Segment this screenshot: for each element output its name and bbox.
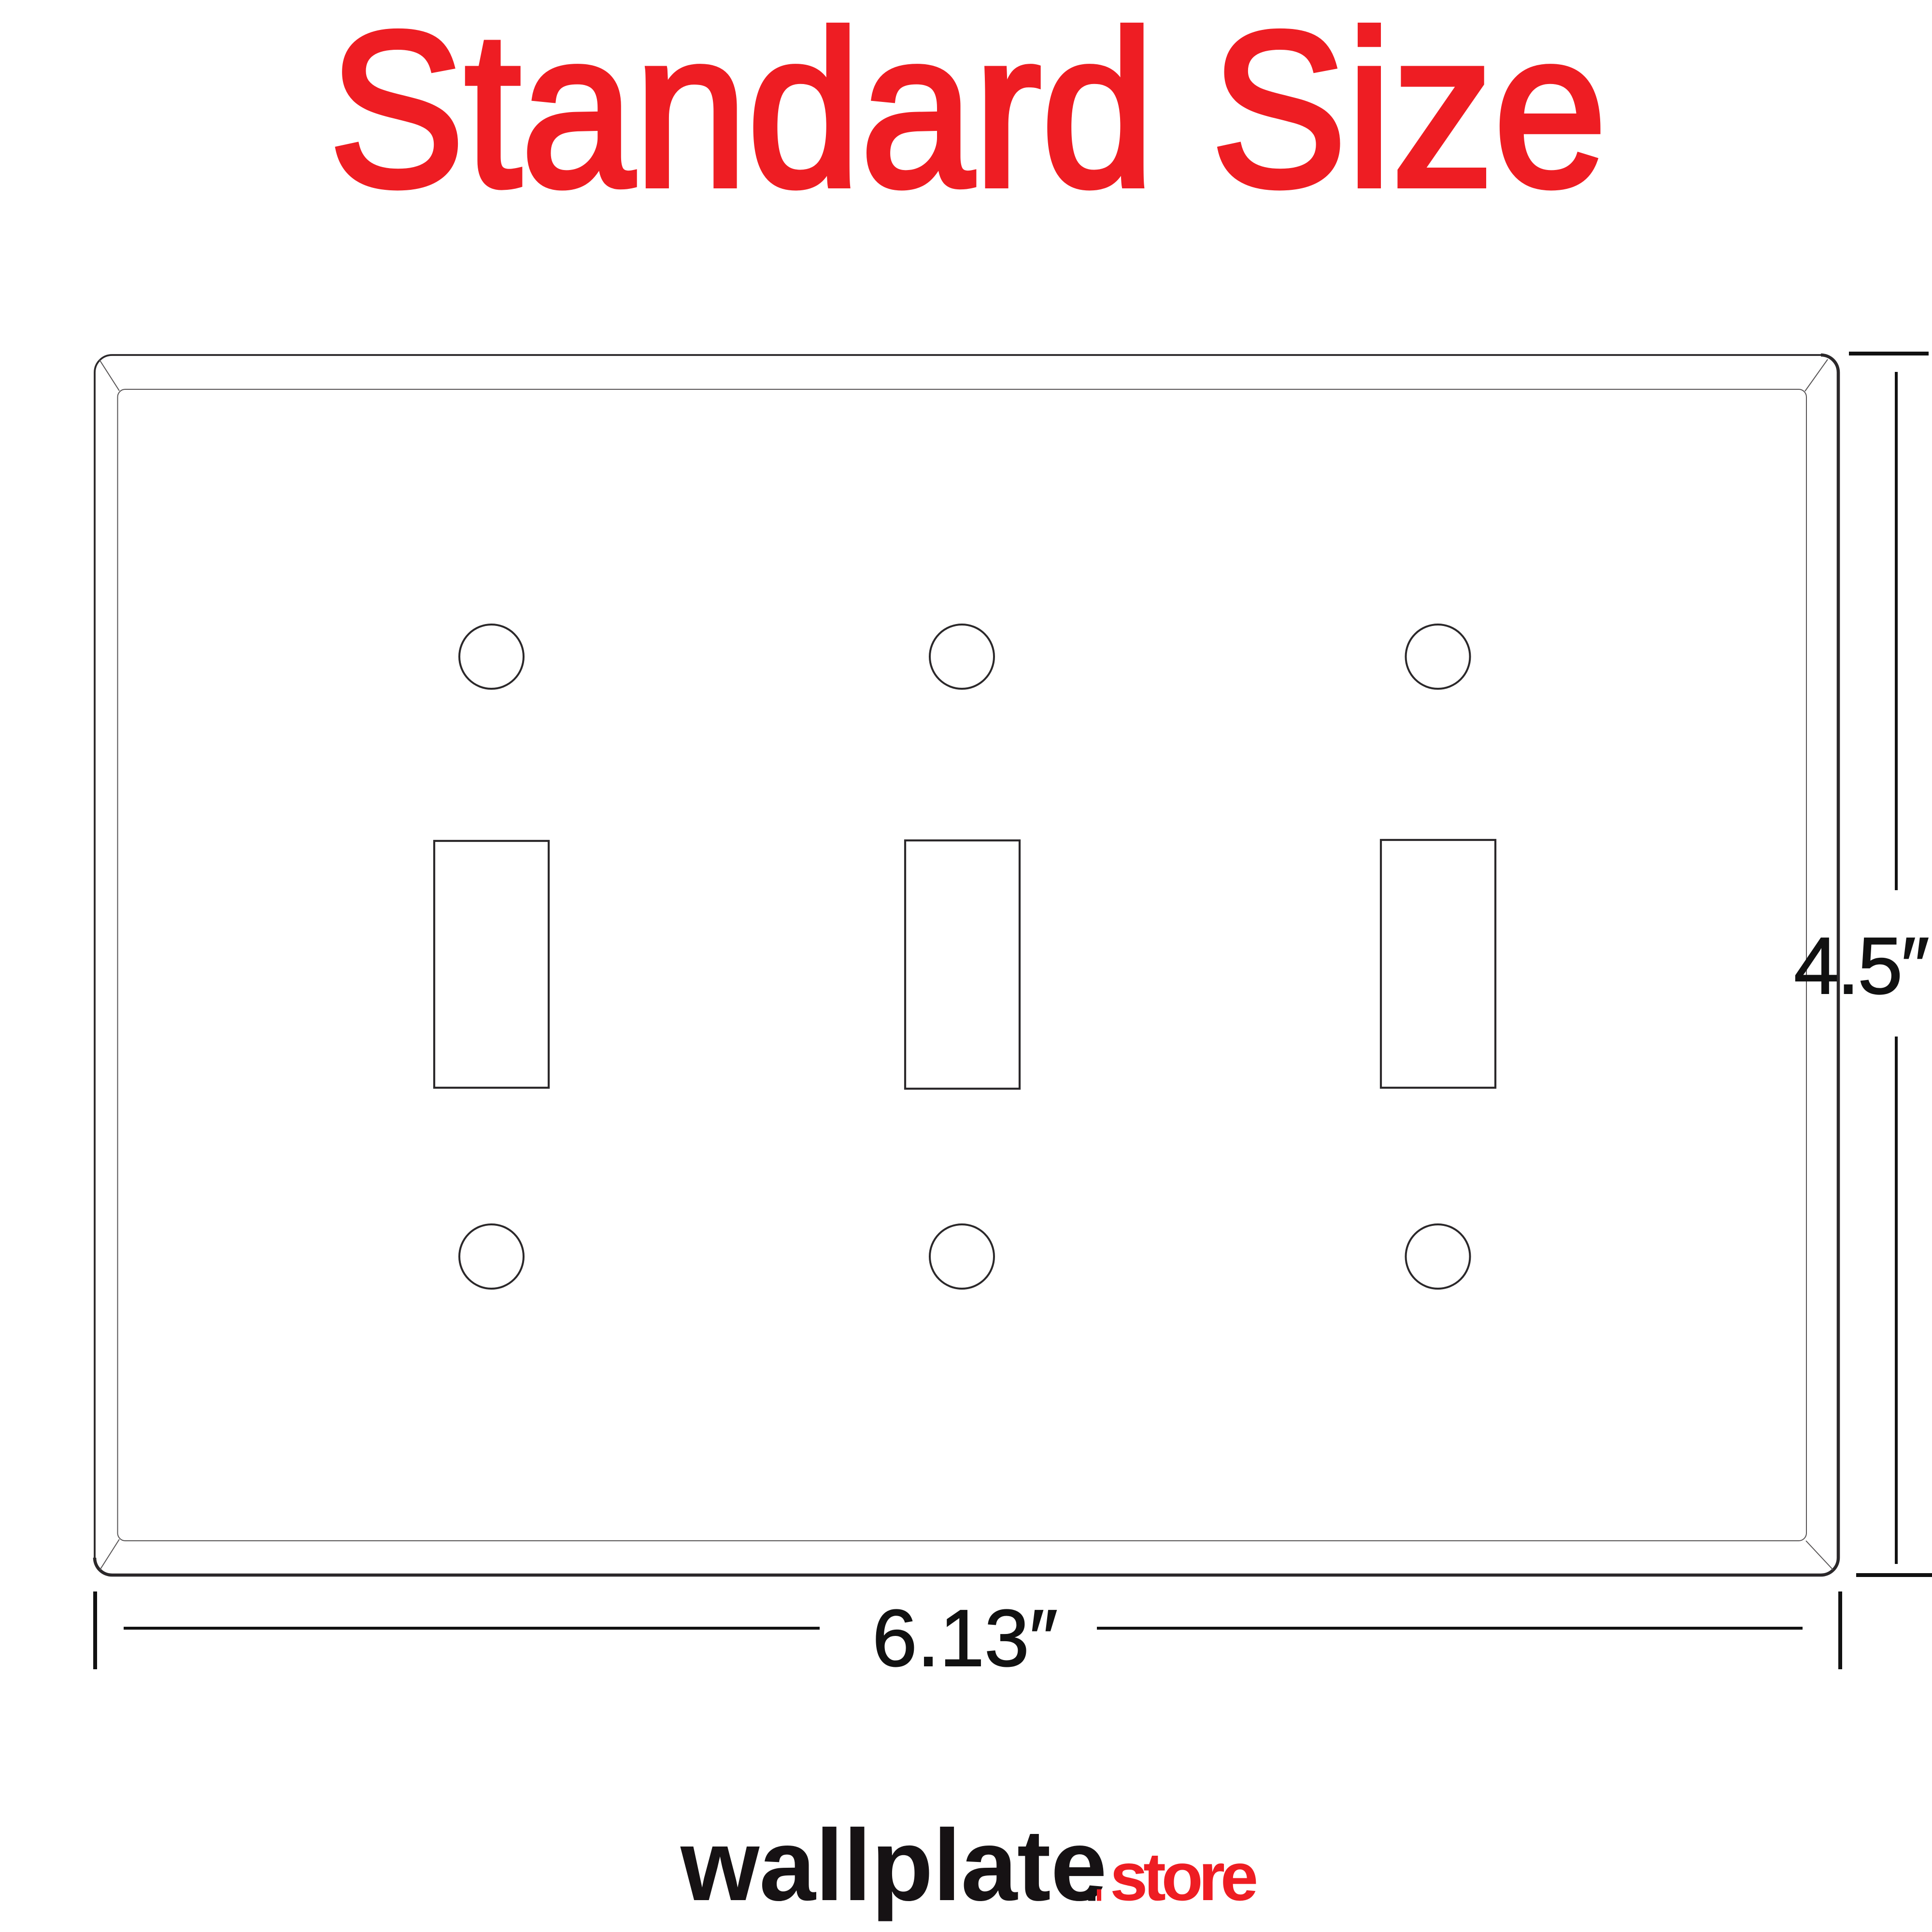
svg-text:Standard Size: Standard Size (329, 0, 1607, 233)
svg-text:wallplate: wallplate (680, 1808, 1107, 1922)
svg-text:store: store (1110, 1838, 1256, 1915)
svg-text:6.13″: 6.13″ (872, 1593, 1058, 1683)
svg-text:4.5″: 4.5″ (1794, 921, 1929, 1011)
